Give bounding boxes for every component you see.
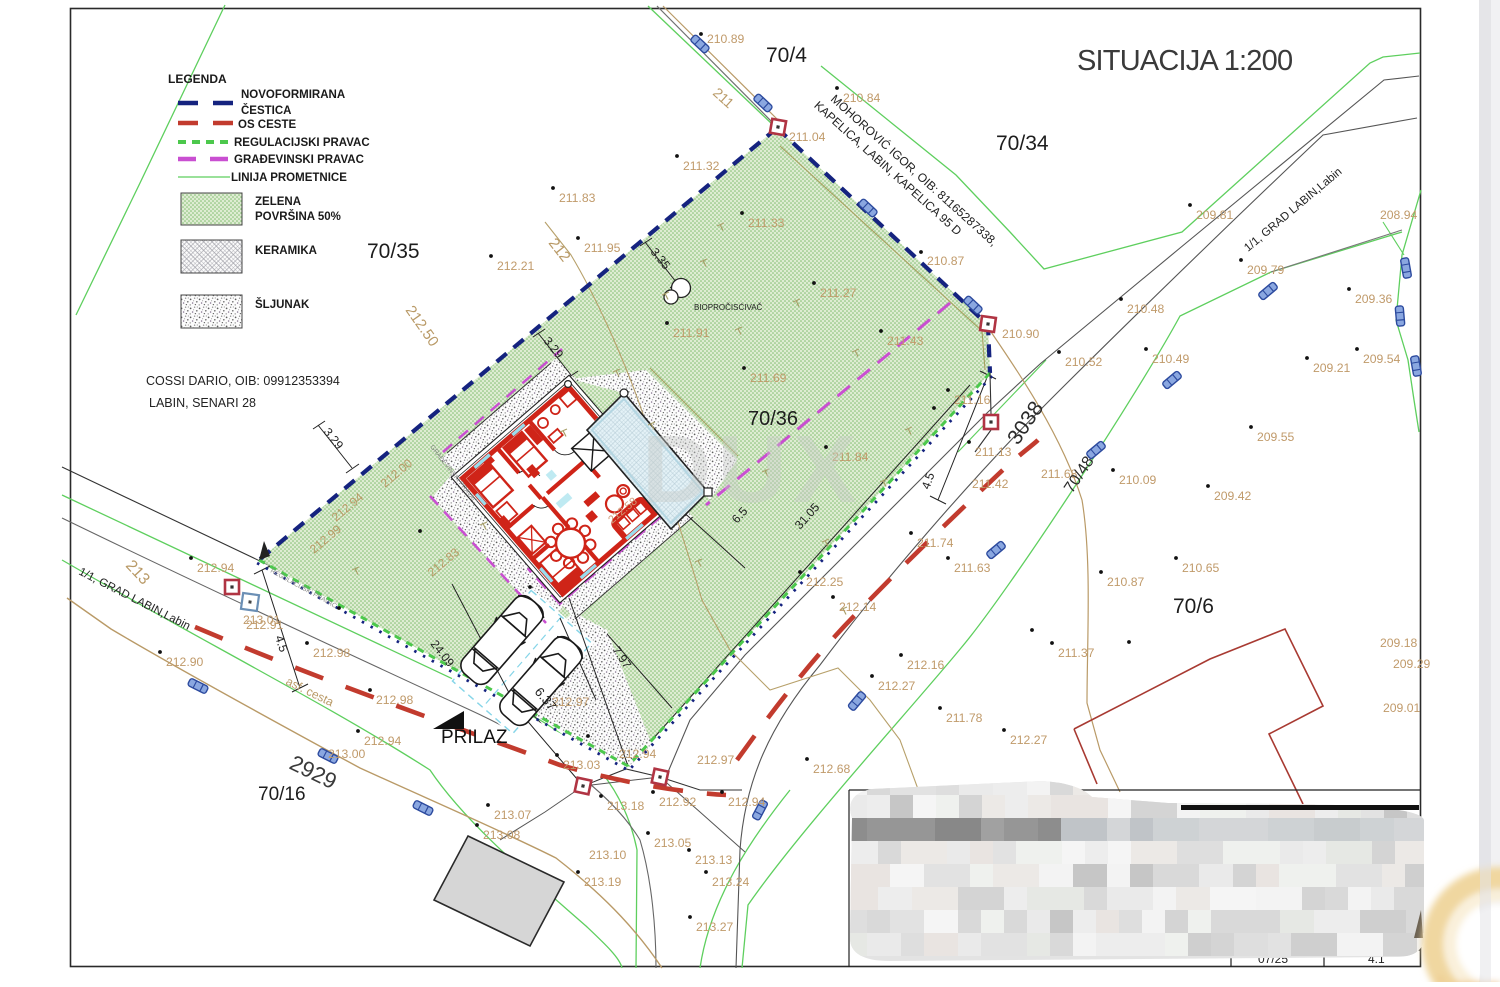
svg-text:211.42: 211.42: [972, 477, 1009, 491]
svg-text:70/16: 70/16: [258, 784, 306, 805]
svg-text:211.04: 211.04: [789, 130, 826, 144]
svg-text:211.16: 211.16: [954, 393, 991, 407]
svg-text:211.69: 211.69: [750, 371, 787, 385]
svg-text:OS CESTE: OS CESTE: [238, 119, 296, 131]
svg-text:212.94: 212.94: [197, 561, 234, 575]
svg-text:209.55: 209.55: [1257, 430, 1294, 444]
svg-text:BIOPROČISĆIVAČ: BIOPROČISĆIVAČ: [694, 303, 763, 312]
svg-text:211.13: 211.13: [975, 445, 1012, 459]
svg-text:211.37: 211.37: [1058, 646, 1095, 660]
svg-text:209.81: 209.81: [1196, 208, 1233, 222]
svg-text:210.87: 210.87: [927, 254, 964, 268]
svg-text:211.63: 211.63: [954, 561, 991, 575]
svg-text:209.79: 209.79: [1247, 263, 1284, 277]
svg-text:212.98: 212.98: [376, 693, 413, 707]
svg-text:213.07: 213.07: [494, 808, 531, 822]
svg-text:ČESTICA: ČESTICA: [241, 104, 291, 117]
svg-text:212.21: 212.21: [497, 259, 534, 273]
svg-text:212.94: 212.94: [364, 734, 401, 748]
svg-text:208.94: 208.94: [1380, 208, 1417, 222]
svg-text:211.33: 211.33: [748, 216, 785, 230]
svg-text:213.03: 213.03: [563, 758, 600, 772]
svg-text:DUX: DUX: [642, 416, 863, 523]
svg-text:211.91: 211.91: [673, 326, 710, 340]
svg-text:70/35: 70/35: [367, 240, 420, 263]
svg-text:NOVOFORMIRANA: NOVOFORMIRANA: [241, 89, 345, 101]
svg-text:COSSI DARIO, OIB: 09912353394: COSSI DARIO, OIB: 09912353394: [146, 374, 340, 388]
svg-text:209.54: 209.54: [1363, 352, 1400, 366]
svg-text:210.09: 210.09: [1119, 473, 1156, 487]
svg-text:209.42: 209.42: [1214, 489, 1251, 503]
svg-text:211.32: 211.32: [683, 159, 720, 173]
svg-text:212.98: 212.98: [313, 646, 350, 660]
svg-text:213.10: 213.10: [589, 848, 626, 862]
svg-text:PRILAZ: PRILAZ: [441, 727, 508, 748]
svg-text:ŠLJUNAK: ŠLJUNAK: [255, 298, 310, 311]
svg-text:212.25: 212.25: [806, 575, 843, 589]
svg-text:210.52: 210.52: [1065, 355, 1102, 369]
svg-text:210.89: 210.89: [707, 32, 744, 46]
svg-text:213.24: 213.24: [712, 875, 749, 889]
svg-text:210.48: 210.48: [1127, 302, 1164, 316]
svg-text:212.16: 212.16: [907, 658, 944, 672]
svg-text:212.94: 212.94: [728, 795, 765, 809]
svg-text:70/6: 70/6: [1173, 595, 1214, 618]
svg-text:213.08: 213.08: [483, 828, 520, 842]
svg-text:209.18: 209.18: [1380, 636, 1417, 650]
svg-text:209.29: 209.29: [1393, 657, 1430, 671]
svg-text:213.13: 213.13: [695, 853, 732, 867]
svg-text:211.78: 211.78: [946, 711, 983, 725]
svg-text:211.43: 211.43: [887, 334, 924, 348]
svg-text:213.05: 213.05: [654, 836, 691, 850]
svg-text:SITUACIJA 1:200: SITUACIJA 1:200: [1077, 45, 1292, 77]
svg-text:212.94: 212.94: [619, 747, 656, 761]
svg-text:212.68: 212.68: [813, 762, 850, 776]
svg-text:210.90: 210.90: [1002, 327, 1039, 341]
svg-text:210.65: 210.65: [1182, 561, 1219, 575]
svg-text:210.49: 210.49: [1152, 352, 1189, 366]
svg-text:212.91: 212.91: [246, 618, 283, 632]
svg-text:212.14: 212.14: [839, 600, 876, 614]
svg-text:LABIN, SENARI 28: LABIN, SENARI 28: [149, 396, 256, 410]
svg-text:213.18: 213.18: [607, 799, 644, 813]
svg-text:212.92: 212.92: [659, 795, 696, 809]
svg-text:211.83: 211.83: [559, 191, 596, 205]
svg-text:70/34: 70/34: [996, 132, 1049, 155]
svg-text:209.01: 209.01: [1383, 701, 1420, 715]
svg-text:POVRŠINA 50%: POVRŠINA 50%: [255, 210, 341, 223]
svg-text:213.27: 213.27: [696, 920, 733, 934]
svg-text:LINIJA PROMETNICE: LINIJA PROMETNICE: [231, 172, 347, 184]
svg-text:210.87: 210.87: [1107, 575, 1144, 589]
svg-text:KERAMIKA: KERAMIKA: [255, 245, 317, 257]
svg-text:213.19: 213.19: [584, 875, 621, 889]
svg-text:212.97: 212.97: [697, 753, 734, 767]
svg-text:REGULACIJSKI PRAVAC: REGULACIJSKI PRAVAC: [234, 137, 370, 149]
svg-text:212.27: 212.27: [878, 679, 915, 693]
svg-text:209.36: 209.36: [1355, 292, 1392, 306]
svg-text:213.00: 213.00: [328, 747, 365, 761]
svg-text:GRAĐEVINSKI PRAVAC: GRAĐEVINSKI PRAVAC: [234, 154, 364, 166]
svg-text:LEGENDA: LEGENDA: [168, 72, 227, 86]
svg-text:70/4: 70/4: [766, 44, 807, 67]
svg-text:209.21: 209.21: [1313, 361, 1350, 375]
svg-text:211.74: 211.74: [917, 536, 954, 550]
svg-text:212.90: 212.90: [166, 655, 203, 669]
svg-text:211.27: 211.27: [820, 286, 857, 300]
svg-text:212.27: 212.27: [1010, 733, 1047, 747]
svg-text:211.95: 211.95: [584, 241, 621, 255]
svg-text:ZELENA: ZELENA: [255, 196, 301, 208]
